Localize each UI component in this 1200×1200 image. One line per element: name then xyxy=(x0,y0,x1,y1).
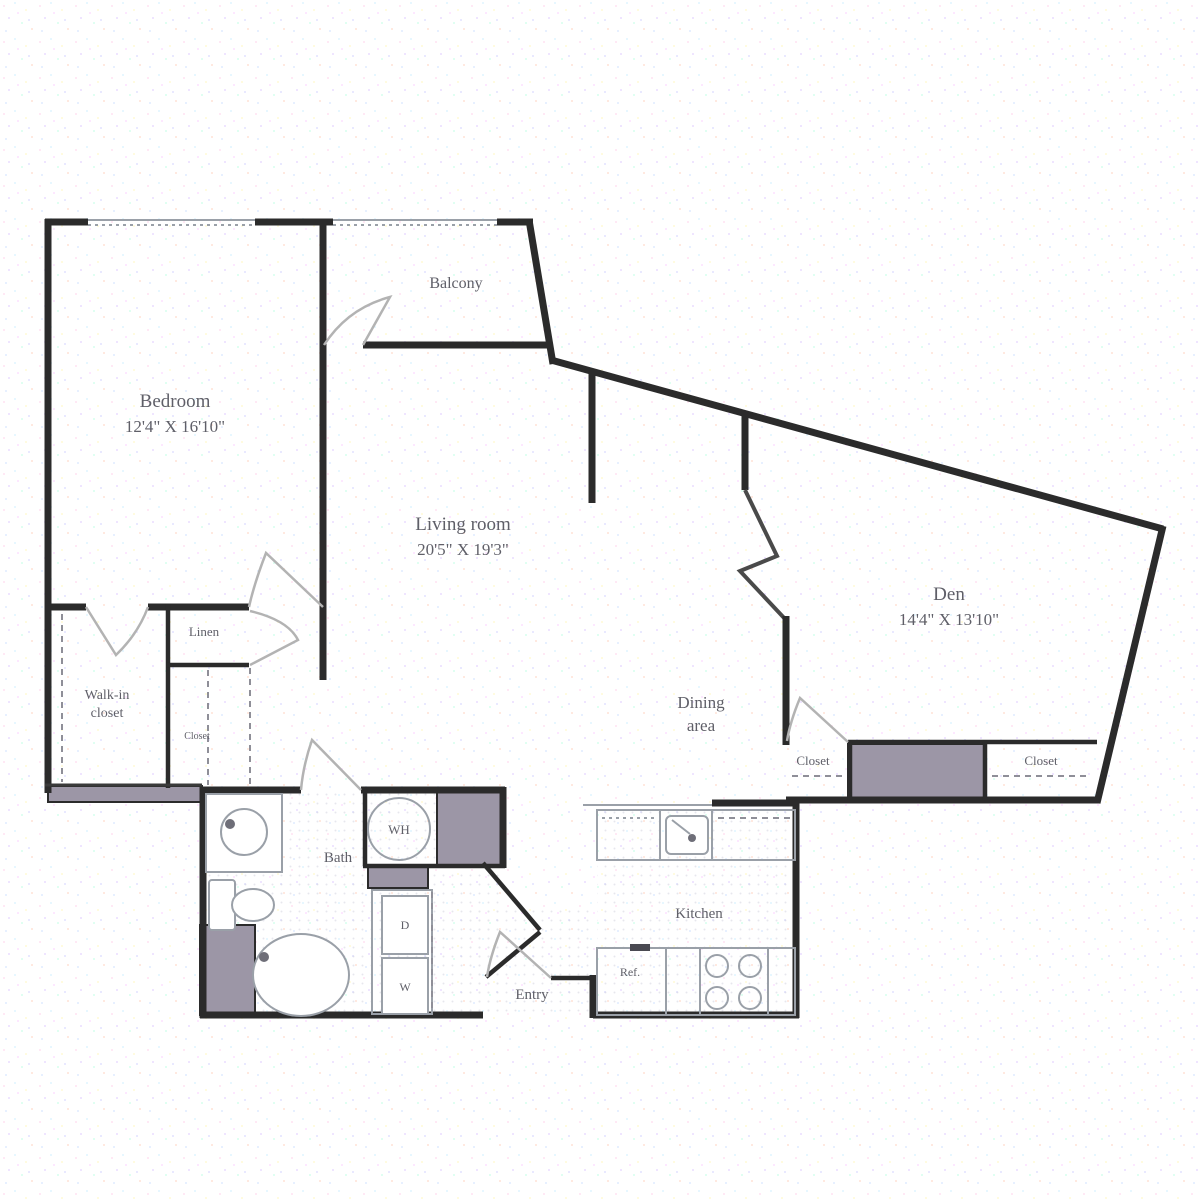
walkin-closet-label-line1: Walk-in xyxy=(85,688,130,703)
sink-faucet xyxy=(225,819,235,829)
den-closet-left-label: Closet xyxy=(796,753,830,768)
water-heater-label: WH xyxy=(388,822,410,837)
shaded-wall-below-walkin xyxy=(48,786,202,802)
bathtub xyxy=(253,934,349,1016)
living-room-dims: 20'5" X 19'3" xyxy=(417,540,509,559)
dryer-label: D xyxy=(401,918,410,932)
shaded-wall-below-wh xyxy=(368,866,428,888)
toilet-bowl xyxy=(232,889,274,921)
shaded-wall-left-of-tub xyxy=(200,925,255,1015)
bedroom-label: Bedroom xyxy=(140,391,211,412)
entry-label: Entry xyxy=(515,987,549,1003)
linen-closet-label: Linen xyxy=(189,624,220,639)
floor-plan-drawing: Balcony Bedroom 12'4" X 16'10" Living ro… xyxy=(0,0,1200,1200)
refrigerator-label: Ref. xyxy=(620,965,640,979)
kitchen-label: Kitchen xyxy=(675,906,723,922)
shaded-wall-between-closets xyxy=(848,744,985,800)
bathtub-drain xyxy=(259,952,269,962)
living-room-label: Living room xyxy=(415,514,511,535)
dining-area-label-line1: Dining xyxy=(677,693,725,712)
dining-area-label-line2: area xyxy=(687,716,716,735)
walkin-closet-label-line2: closet xyxy=(91,706,124,721)
vanity xyxy=(206,794,282,872)
floor-plan-image: Balcony Bedroom 12'4" X 16'10" Living ro… xyxy=(0,0,1200,1200)
laundry-fixtures xyxy=(372,890,432,1014)
balcony-label: Balcony xyxy=(429,275,482,292)
shaded-wall-right-of-wh xyxy=(437,792,501,866)
kitchen-sink xyxy=(666,816,708,854)
den-label: Den xyxy=(933,584,965,605)
kitchen-sink-drain xyxy=(688,834,696,842)
den-closet-right-label: Closet xyxy=(1024,753,1058,768)
hall-closet-label: Closet xyxy=(184,731,210,742)
page-background xyxy=(0,0,1200,1200)
bedroom-dims: 12'4" X 16'10" xyxy=(125,417,225,436)
bath-label: Bath xyxy=(324,850,353,866)
refrigerator-handle xyxy=(630,944,650,951)
washer-label: W xyxy=(399,980,411,994)
den-dims: 14'4" X 13'10" xyxy=(899,610,999,629)
